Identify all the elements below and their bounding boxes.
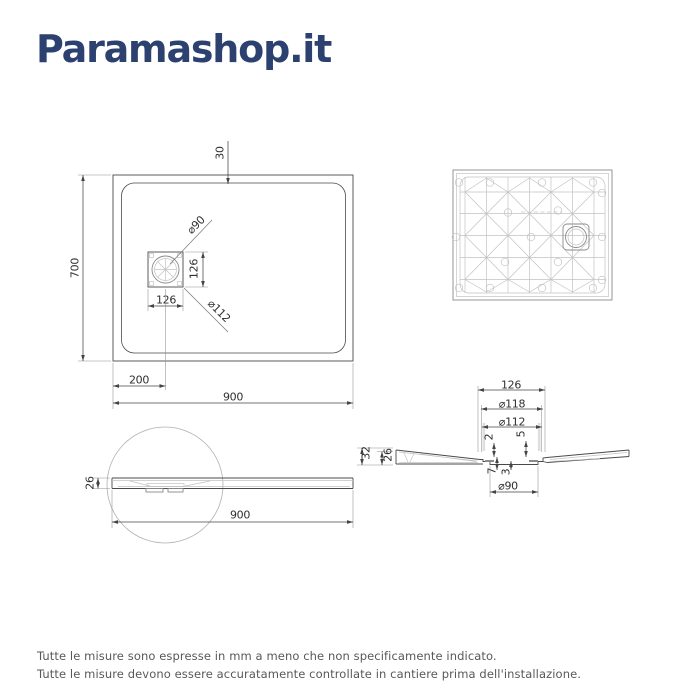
dim-label-drain-box-height: 126: [188, 259, 201, 279]
dim-label-step-left: 7: [486, 467, 499, 474]
plan-drain: [148, 252, 183, 287]
technical-drawing-page: Paramashop.it 70: [0, 0, 700, 700]
plan-view: 700 30 ⌀90 126 126 ⌀112 200: [69, 141, 354, 409]
dim-label-drain-offset: 200: [129, 374, 149, 387]
dim-label-drain-diameter: ⌀90: [184, 213, 207, 236]
dim-label-recess-width: 126: [501, 379, 521, 392]
dim-label-border-top: 30: [214, 146, 227, 160]
footer-notes: Tutte le misure sono espresse in mm a me…: [37, 648, 581, 683]
plan-inner-edge: [122, 183, 346, 353]
drawing-canvas: 700 30 ⌀90 126 126 ⌀112 200: [0, 0, 700, 700]
bottom-drain: [563, 224, 589, 250]
plan-outer-edge: [113, 175, 353, 361]
dim-label-step-right: 3: [500, 468, 513, 475]
dim-label-drain-box-width: 126: [156, 294, 176, 307]
bottom-inner-edge: [460, 177, 605, 293]
dim-label-thickness: 26: [84, 476, 97, 490]
dim-label-flange-inner: ⌀112: [499, 416, 525, 429]
dim-label-body-height: 26: [382, 448, 395, 462]
dim-label-width: 900: [223, 391, 243, 404]
dim-label-flange-diameter: ⌀112: [205, 297, 233, 325]
section-view: 126 ⌀118 ⌀112 2 5 32 26 7: [357, 379, 629, 498]
dim-label-flange-outer: ⌀118: [499, 398, 526, 411]
dim-label-seat: 5: [515, 430, 528, 437]
bottom-view: [452, 170, 612, 300]
dim-label-lip: 2: [483, 434, 496, 441]
detail-circle: [107, 427, 223, 543]
side-view: 26 900: [84, 427, 354, 543]
section-profile: [396, 450, 629, 465]
bottom-outer-edge: [453, 170, 612, 300]
footer-note-line2: Tutte le misure devono essere accuratame…: [37, 666, 581, 684]
dim-label-total-height: 32: [360, 446, 373, 459]
dim-label-height: 700: [69, 258, 82, 278]
side-profile: [112, 478, 353, 492]
dim-label-length: 900: [230, 509, 250, 522]
footer-note-line1: Tutte le misure sono espresse in mm a me…: [37, 648, 581, 666]
dim-label-drain-hole: ⌀90: [498, 480, 518, 493]
rib-grid: [452, 177, 606, 293]
